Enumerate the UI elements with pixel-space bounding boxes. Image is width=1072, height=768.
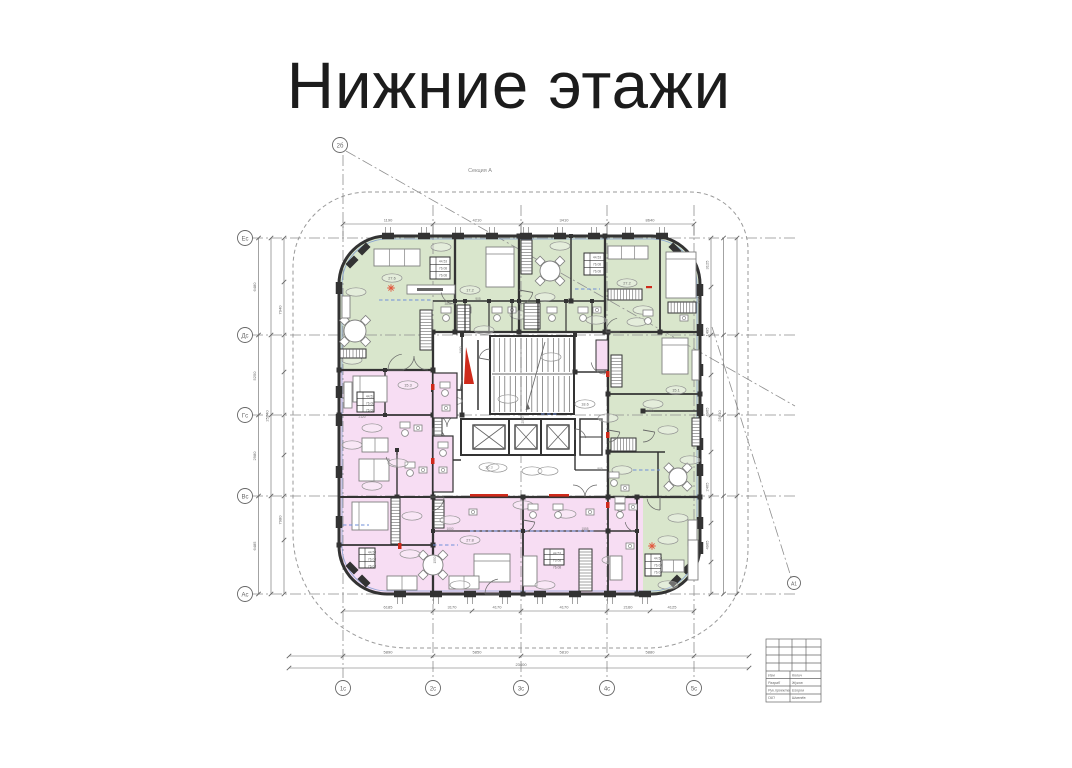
svg-text:8640: 8640	[646, 218, 656, 223]
svg-text:5890: 5890	[384, 650, 394, 655]
svg-text:2б: 2б	[337, 144, 344, 150]
svg-text:2980: 2980	[252, 451, 257, 461]
svg-text:1550: 1550	[433, 556, 437, 563]
svg-text:Дс: Дс	[241, 334, 248, 340]
svg-text:1190: 1190	[384, 218, 393, 223]
svg-text:7940: 7940	[278, 305, 283, 315]
svg-text:4с: 4с	[604, 687, 610, 693]
svg-text:5850: 5850	[473, 650, 483, 655]
svg-text:2560: 2560	[521, 416, 525, 423]
svg-text:76.08: 76.08	[439, 267, 447, 271]
svg-text:4170: 4170	[493, 605, 503, 610]
svg-text:5880: 5880	[646, 650, 656, 655]
svg-text:15.1: 15.1	[672, 389, 679, 393]
svg-text:44.53: 44.53	[366, 395, 374, 399]
svg-text:Егоров: Егоров	[792, 689, 804, 693]
svg-text:2120: 2120	[358, 415, 365, 419]
svg-text:Разраб: Разраб	[768, 681, 781, 685]
svg-text:Шмелёв: Шмелёв	[792, 696, 806, 700]
svg-text:2с: 2с	[430, 687, 436, 693]
svg-text:5с: 5с	[691, 687, 697, 693]
svg-text:44.53: 44.53	[439, 260, 447, 264]
svg-text:44.53: 44.53	[654, 557, 662, 561]
svg-text:76.08: 76.08	[654, 571, 662, 575]
svg-text:6485: 6485	[252, 541, 257, 551]
svg-text:5810: 5810	[560, 650, 570, 655]
svg-text:4965: 4965	[705, 540, 710, 550]
svg-text:3410: 3410	[560, 218, 570, 223]
svg-text:5250: 5250	[252, 371, 257, 381]
svg-text:3170: 3170	[448, 605, 458, 610]
svg-text:76.08: 76.08	[593, 270, 601, 274]
svg-text:4170: 4170	[560, 605, 570, 610]
svg-text:76.08: 76.08	[439, 274, 447, 278]
svg-text:3с: 3с	[518, 687, 524, 693]
svg-text:Колич: Колич	[792, 674, 802, 678]
svg-text:3125: 3125	[697, 296, 701, 303]
svg-text:25640: 25640	[717, 410, 722, 422]
svg-text:Ес: Ес	[242, 237, 249, 243]
svg-text:1950: 1950	[459, 346, 463, 353]
svg-text:905: 905	[597, 467, 603, 471]
svg-text:76.08: 76.08	[366, 409, 374, 413]
svg-text:76.08: 76.08	[368, 558, 376, 562]
svg-text:6185: 6185	[384, 605, 394, 610]
svg-text:27.6: 27.6	[388, 277, 395, 281]
svg-text:23400: 23400	[515, 662, 527, 667]
svg-text:Секция А: Секция А	[468, 168, 492, 174]
svg-text:1080: 1080	[646, 409, 653, 413]
svg-text:800: 800	[607, 557, 611, 563]
svg-text:3850: 3850	[444, 302, 451, 306]
svg-text:44.53: 44.53	[368, 551, 376, 555]
svg-text:Жуков: Жуков	[791, 681, 803, 685]
svg-text:Нижние этажи: Нижние этажи	[287, 49, 731, 122]
svg-text:4125: 4125	[668, 605, 678, 610]
svg-text:44.53: 44.53	[553, 552, 561, 556]
svg-text:Рук.проекта: Рук.проекта	[768, 689, 790, 693]
svg-text:Изм: Изм	[768, 674, 775, 678]
svg-text:1555: 1555	[581, 527, 588, 531]
svg-text:1495: 1495	[705, 327, 710, 337]
svg-text:76.08: 76.08	[368, 565, 376, 569]
svg-text:Ас: Ас	[241, 593, 248, 599]
svg-text:1000: 1000	[446, 527, 453, 531]
svg-text:2160: 2160	[624, 605, 634, 610]
svg-text:25640: 25640	[265, 410, 270, 422]
svg-text:76.08: 76.08	[593, 263, 601, 267]
svg-text:6480: 6480	[252, 282, 257, 292]
svg-text:2465: 2465	[705, 482, 710, 492]
svg-text:76.08: 76.08	[654, 564, 662, 568]
svg-text:7980: 7980	[278, 515, 283, 525]
svg-text:15.3: 15.3	[404, 384, 411, 388]
svg-text:ГАП: ГАП	[768, 696, 775, 700]
svg-text:44.53: 44.53	[593, 256, 601, 260]
svg-text:Вс: Вс	[241, 495, 248, 501]
svg-text:27.8: 27.8	[466, 539, 473, 543]
svg-text:18.6: 18.6	[581, 403, 588, 407]
svg-text:3125: 3125	[705, 260, 710, 270]
svg-text:905: 905	[475, 297, 481, 301]
svg-text:4965: 4965	[705, 407, 710, 417]
svg-text:1с: 1с	[340, 687, 346, 693]
svg-text:27.2: 27.2	[623, 282, 630, 286]
svg-text:76.08: 76.08	[553, 559, 561, 563]
svg-text:76.08: 76.08	[553, 566, 561, 570]
svg-text:А1: А1	[791, 582, 797, 588]
svg-text:76.08: 76.08	[366, 402, 374, 406]
svg-text:Гс: Гс	[242, 414, 248, 420]
svg-text:17.2: 17.2	[466, 289, 473, 293]
svg-text:4210: 4210	[473, 218, 483, 223]
